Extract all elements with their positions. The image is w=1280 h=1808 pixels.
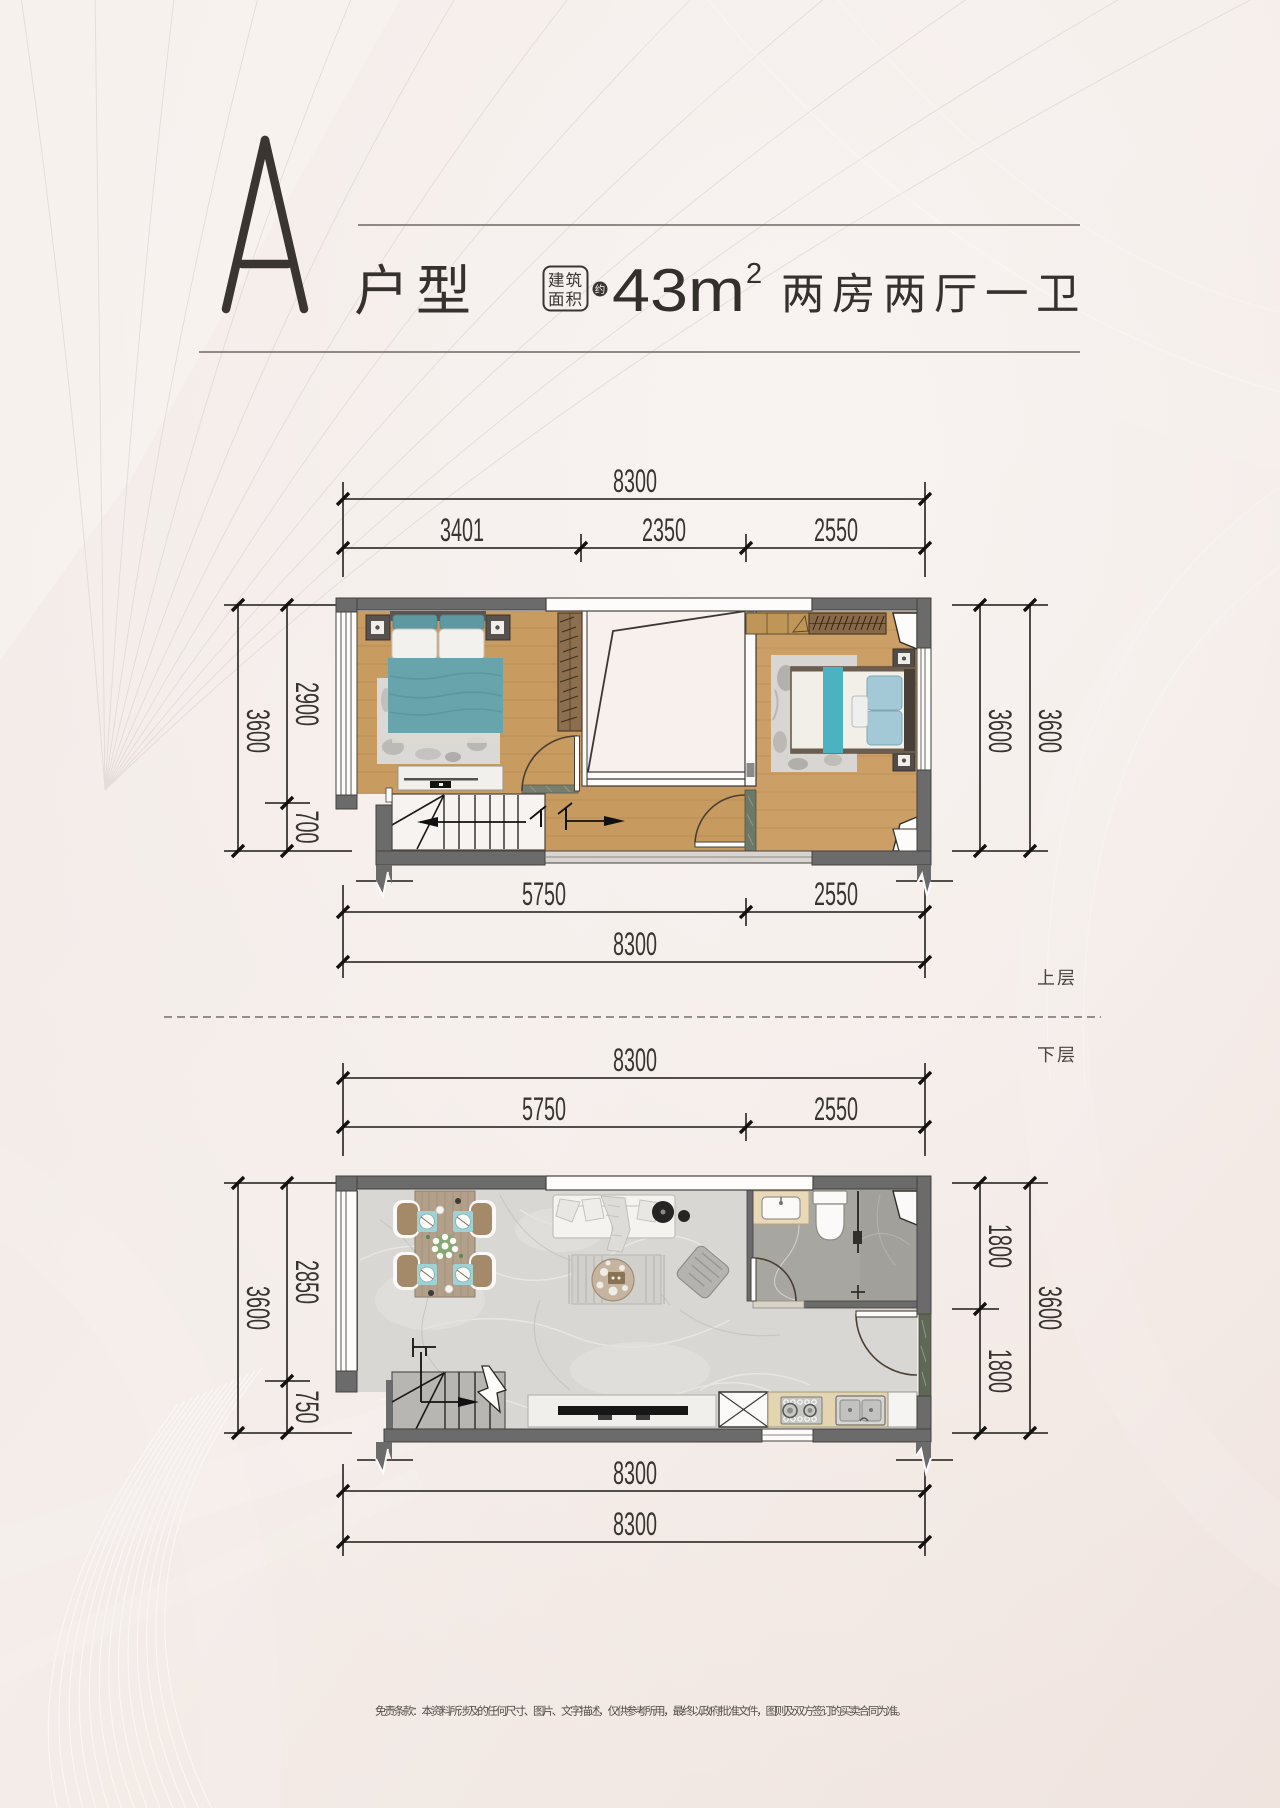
svg-text:3600: 3600 (240, 1286, 276, 1330)
svg-text:面积: 面积 (548, 286, 583, 310)
svg-text:8300: 8300 (613, 926, 657, 962)
svg-text:两房两厅一卫: 两房两厅一卫 (781, 259, 1087, 322)
svg-text:下层: 下层 (1037, 1041, 1077, 1067)
svg-text:上层: 上层 (1037, 964, 1077, 990)
svg-text:3600: 3600 (240, 709, 276, 753)
svg-text:2550: 2550 (814, 876, 858, 912)
svg-text:约: 约 (595, 282, 606, 297)
svg-text:3600: 3600 (1032, 709, 1068, 753)
svg-text:2: 2 (746, 258, 762, 290)
svg-text:5750: 5750 (522, 1091, 566, 1127)
svg-text:免责条款：本资料所涉及的任何尺寸、图片、文字描述，仅供参考所: 免责条款：本资料所涉及的任何尺寸、图片、文字描述，仅供参考所用，最终以政府批准文… (375, 1703, 905, 1719)
svg-text:8300: 8300 (613, 1455, 657, 1491)
svg-text:2350: 2350 (642, 512, 686, 548)
svg-text:1800: 1800 (982, 1349, 1018, 1393)
svg-text:8300: 8300 (613, 1042, 657, 1078)
svg-text:700: 700 (289, 811, 325, 844)
svg-text:8300: 8300 (613, 463, 657, 499)
svg-text:2850: 2850 (289, 1260, 325, 1304)
svg-text:3600: 3600 (982, 709, 1018, 753)
svg-text:3401: 3401 (440, 512, 484, 548)
svg-text:3600: 3600 (1032, 1286, 1068, 1330)
svg-text:2550: 2550 (814, 1091, 858, 1127)
svg-text:户型: 户型 (354, 246, 478, 326)
svg-text:2900: 2900 (289, 682, 325, 726)
svg-text:750: 750 (289, 1391, 325, 1424)
svg-text:2550: 2550 (814, 512, 858, 548)
svg-text:5750: 5750 (522, 876, 566, 912)
svg-text:1800: 1800 (982, 1224, 1018, 1268)
svg-text:8300: 8300 (613, 1506, 657, 1542)
svg-text:43m: 43m (612, 257, 745, 324)
